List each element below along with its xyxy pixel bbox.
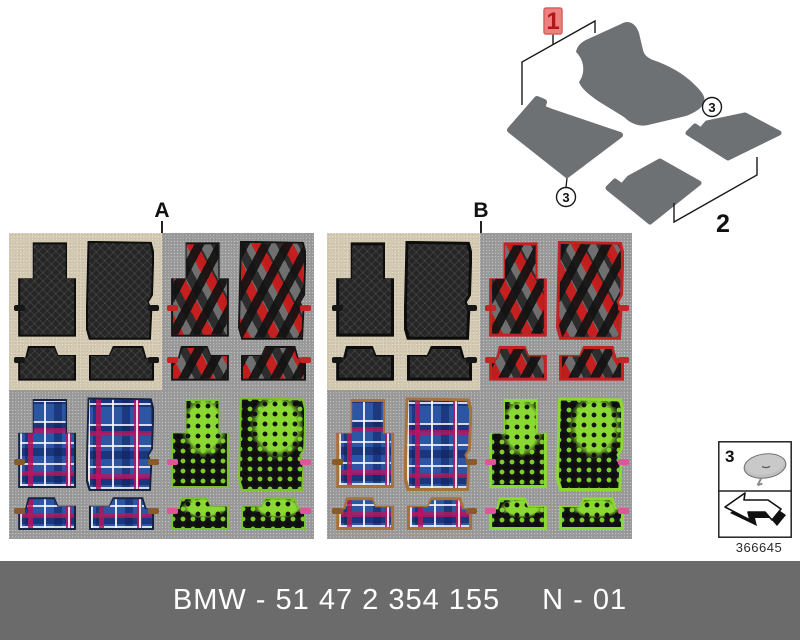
drawing-number: 366645 [712,540,800,555]
variant-a-label: A [147,199,177,223]
rear-right-mat [89,346,155,381]
black-quilted-mats-photo [327,233,480,390]
fastener-tab [485,305,496,311]
callout-3a-label: 3 [708,100,715,115]
fastener-tab [466,508,477,514]
fastener-tab [485,357,496,363]
fastener-tab [167,459,178,465]
variant-a-tick [161,221,163,233]
callout-1-label: 1 [546,8,559,35]
rear-left-mat [336,346,394,381]
fastener-tab [148,357,159,363]
red-checkered-mats-red-trim-photo [480,233,632,390]
rear-left-mat [18,497,76,530]
rear-left-mat [489,346,547,381]
callout-3b-leader [566,178,567,187]
passenger-mat-shape [510,99,620,175]
fastener-tab [466,357,477,363]
fastener-tab [300,357,311,363]
rear-right-mat [407,497,473,530]
callout-3b[interactable]: 3 [557,188,576,207]
fastener-tab [167,508,178,514]
fastener-tab [618,305,629,311]
callout-3b-label: 3 [562,190,569,205]
fastener-tab [167,305,178,311]
legend-box[interactable]: 3 [718,441,792,538]
fastener-tab [485,508,496,514]
rear-right-mat [559,346,624,381]
rear-right-mat [559,497,624,530]
front-right-mat [404,397,473,491]
front-right-mat [86,397,155,491]
fastener-tab [300,459,311,465]
variant-a-photo-panel [9,233,314,539]
front-left-mat [18,242,76,336]
callout-2-label[interactable]: 2 [716,210,730,234]
fastener-tab [466,459,477,465]
front-right-mat [556,397,624,491]
legend-item-number: 3 [725,447,734,466]
rear-left-mat [18,346,76,381]
rear-left-mat [171,346,229,381]
rear-right-mat-shape [688,115,779,158]
fastener-tab [167,357,178,363]
front-left-mat [489,399,547,488]
front-left-mat [18,399,76,488]
front-right-mat [238,397,306,491]
rear-right-mat [407,346,473,381]
front-right-mat [556,241,624,340]
rear-left-mat [336,497,394,530]
fastener-tab [485,459,496,465]
black-quilted-mats-photo [9,233,162,390]
part-number-bar: BMW - 51 47 2 354 155 N - 01 [0,561,800,640]
callout-1[interactable]: 1 [544,8,562,35]
fastener-tab [300,508,311,514]
part-number-text: BMW - 51 47 2 354 155 [173,584,500,617]
green-dot-mats-green-trim-photo [480,390,632,539]
front-left-mat [336,242,394,336]
fastener-tab [332,305,343,311]
fastener-tab [618,508,629,514]
fastener-tab [332,459,343,465]
mat-set-line-drawing: 1 2 3 3 [498,2,798,234]
rear-left-mat [489,497,547,530]
revision-text: N - 01 [542,584,627,617]
fastener-tab [300,305,311,311]
front-left-mat [489,242,547,336]
driver-mat-shape [576,22,705,126]
green-dot-mats-photo [162,390,314,539]
front-right-mat [404,241,473,340]
variant-b-label: B [466,199,496,223]
variant-b-photo-panel [327,233,632,539]
front-left-mat [336,399,394,488]
fastener-tab [148,305,159,311]
fastener-tab [14,459,25,465]
rear-right-mat [241,346,306,381]
front-left-mat [171,399,229,488]
rear-left-mat [171,497,229,530]
callout-3a[interactable]: 3 [703,98,722,117]
parts-catalog-page: 1 2 3 3 A B [0,0,800,640]
blue-plaid-mats-photo [9,390,162,539]
rear-right-mat [89,497,155,530]
fastener-tab [332,357,343,363]
fastener-tab [332,508,343,514]
fastener-tab [148,459,159,465]
red-checkered-mats-photo [162,233,314,390]
variant-b-tick [480,221,482,233]
fastener-tab [148,508,159,514]
rear-center-mat-shape [608,161,699,222]
front-right-mat [86,241,155,340]
fastener-tab [14,305,25,311]
front-right-mat [238,241,306,340]
fastener-tab [618,459,629,465]
fastener-tab [14,508,25,514]
fastener-tab [14,357,25,363]
fastener-tab [618,357,629,363]
front-left-mat [171,242,229,336]
fastener-tab [466,305,477,311]
blue-plaid-mats-tan-trim-photo [327,390,480,539]
rear-right-mat [241,497,306,530]
